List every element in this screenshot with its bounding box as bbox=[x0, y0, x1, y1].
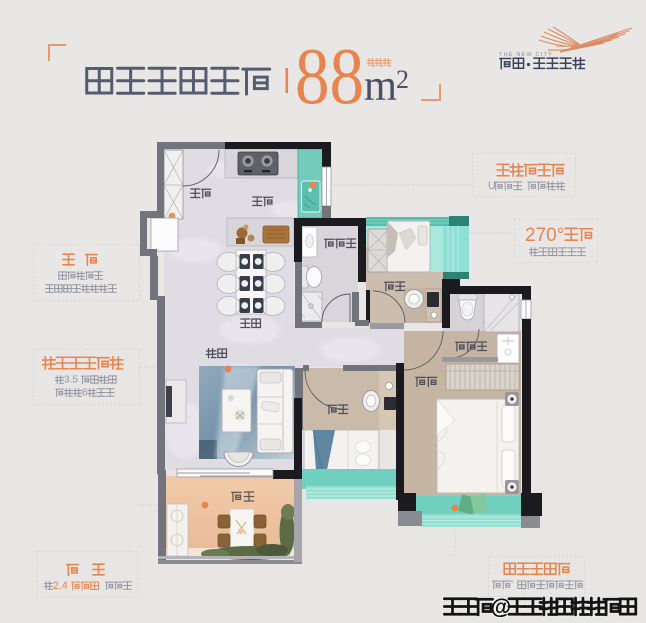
svg-text:2.4: 2.4 bbox=[53, 580, 68, 592]
svg-text:THE NEW CITY: THE NEW CITY bbox=[499, 52, 553, 58]
svg-text:m: m bbox=[364, 61, 397, 110]
svg-text:': ' bbox=[511, 579, 513, 591]
svg-text:2: 2 bbox=[396, 65, 409, 94]
svg-text:270°: 270° bbox=[525, 225, 564, 246]
svg-text:3.5: 3.5 bbox=[64, 375, 78, 386]
svg-text:6: 6 bbox=[82, 388, 88, 399]
svg-text:88: 88 bbox=[295, 31, 364, 121]
